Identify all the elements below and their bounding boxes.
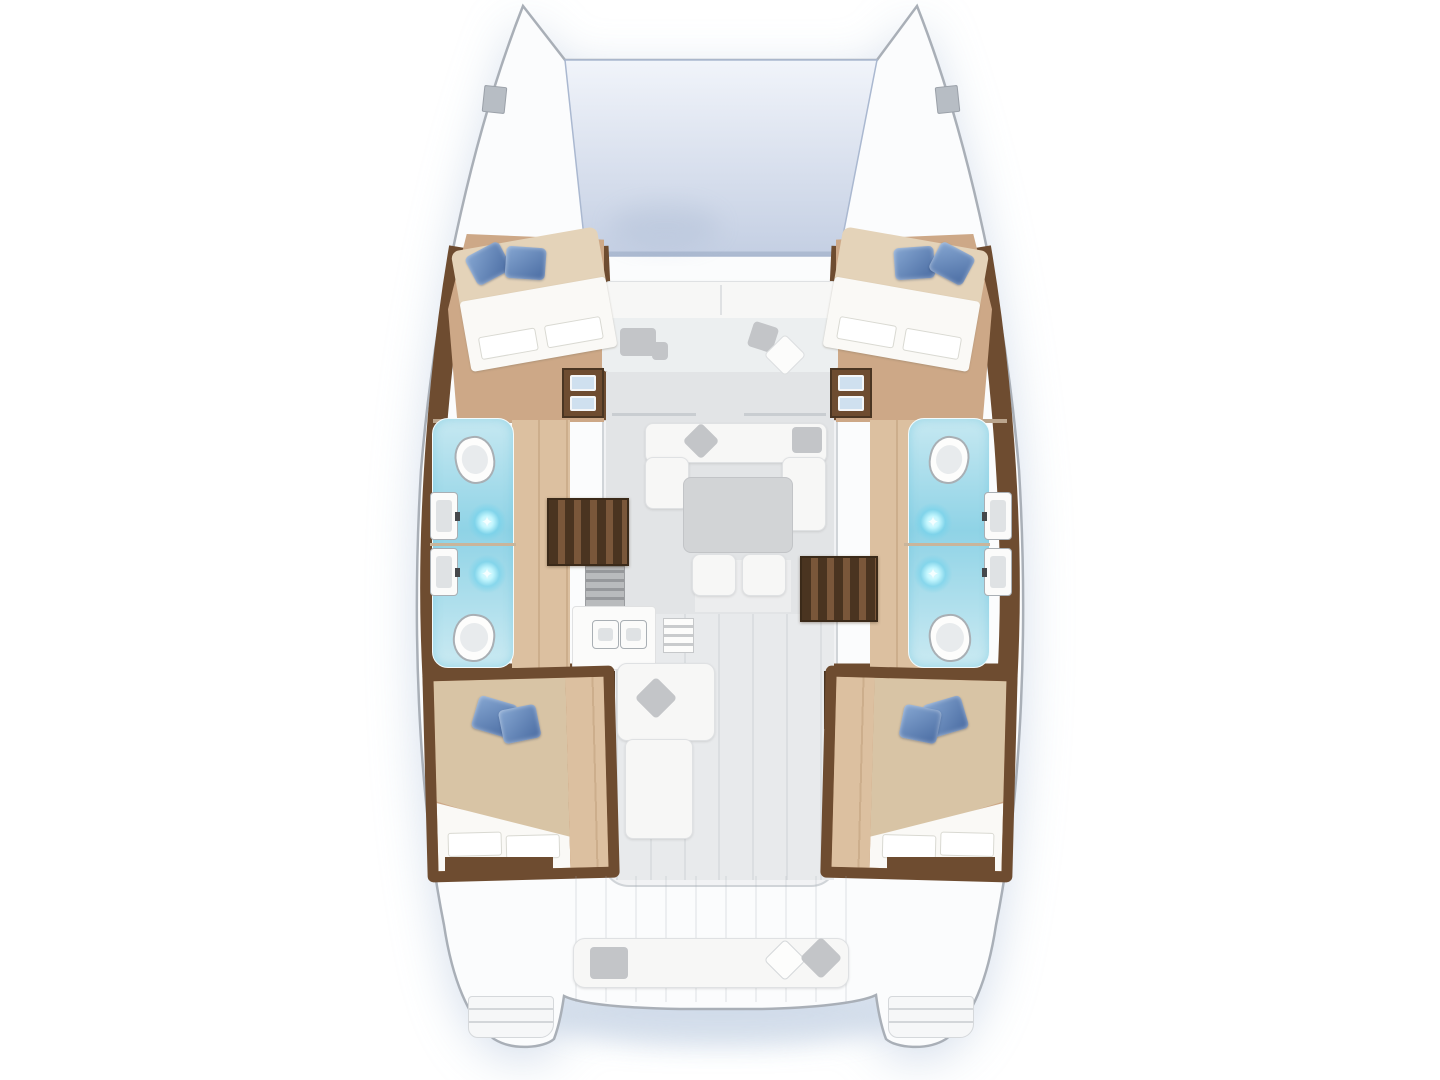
port-aft-cabin-wall <box>445 857 553 874</box>
saloon-chaise <box>617 663 715 741</box>
starboard-forward-bed <box>823 226 990 372</box>
port-sink-aft <box>430 548 458 596</box>
saloon-table <box>683 477 793 553</box>
bed-panel <box>882 834 937 859</box>
bench-divider <box>720 285 722 315</box>
galley-cooktop <box>663 618 694 653</box>
port-bow-hatch <box>482 85 508 114</box>
starboard-bathroom-divider <box>904 543 990 546</box>
port-sink-forward <box>430 492 458 540</box>
saloon-chaise-extension <box>625 739 693 839</box>
bed-panel <box>448 832 503 857</box>
galley-sink <box>592 620 619 649</box>
bed-panel <box>940 832 995 857</box>
port-forward-step-drawers <box>562 368 604 418</box>
lounge-cushion <box>652 342 668 360</box>
chaise-pillow <box>635 677 677 719</box>
port-shower-forward: ✦ <box>468 503 506 541</box>
step-line <box>889 1021 973 1023</box>
sofa-pillow <box>792 427 822 453</box>
step-line <box>469 1008 553 1010</box>
pillow <box>898 704 942 745</box>
forward-cockpit-bench <box>602 281 840 319</box>
bed-panel <box>836 316 897 349</box>
saloon-seat <box>692 554 736 596</box>
trampoline-shading <box>610 204 720 248</box>
bench-pillow <box>590 947 628 979</box>
step-line <box>889 1008 973 1010</box>
aft-cockpit-bench <box>573 938 849 988</box>
port-bathroom-divider <box>430 543 516 546</box>
starboard-aft-cabin <box>820 666 1017 883</box>
starboard-shower-aft: ✦ <box>914 555 952 593</box>
starboard-bow-hatch <box>935 85 961 114</box>
drawer <box>838 396 864 412</box>
lounge-cushion <box>620 328 656 356</box>
pillow <box>505 246 547 281</box>
port-hull-stairs <box>547 498 629 566</box>
step-line <box>469 1021 553 1023</box>
starboard-hull-stairs <box>800 556 878 622</box>
starboard-forward-step-drawers <box>830 368 872 418</box>
galley-stove <box>585 566 625 610</box>
starboard-aft-cabin-wall <box>887 857 995 874</box>
starboard-sink-aft <box>984 548 1012 596</box>
bed-panel <box>478 327 539 360</box>
starboard-shower-forward: ✦ <box>914 503 952 541</box>
bed-panel <box>506 834 561 859</box>
bed-panel <box>902 327 963 360</box>
drawer <box>838 375 864 391</box>
starboard-transom-steps <box>888 996 974 1038</box>
bed-panel <box>543 316 604 349</box>
forward-lounge <box>602 318 838 372</box>
port-transom-steps <box>468 996 554 1038</box>
port-aft-cabin <box>422 666 619 883</box>
drawer <box>570 375 596 391</box>
catamaran-floorplan: ✦ ✦ ✦ ✦ <box>0 0 1440 1080</box>
cabin-floor-strip <box>565 677 608 868</box>
port-shower-aft: ✦ <box>468 555 506 593</box>
saloon-seat <box>742 554 786 596</box>
port-forward-bed <box>451 226 618 372</box>
drawer <box>570 396 596 412</box>
saloon-front-wall <box>612 413 696 416</box>
cabin-floor-strip <box>832 677 875 868</box>
starboard-sink-forward <box>984 492 1012 540</box>
bench-pillow <box>800 937 842 979</box>
saloon-front-wall <box>744 413 826 416</box>
bench-pillow-white <box>764 939 806 981</box>
galley-sink <box>620 620 647 649</box>
